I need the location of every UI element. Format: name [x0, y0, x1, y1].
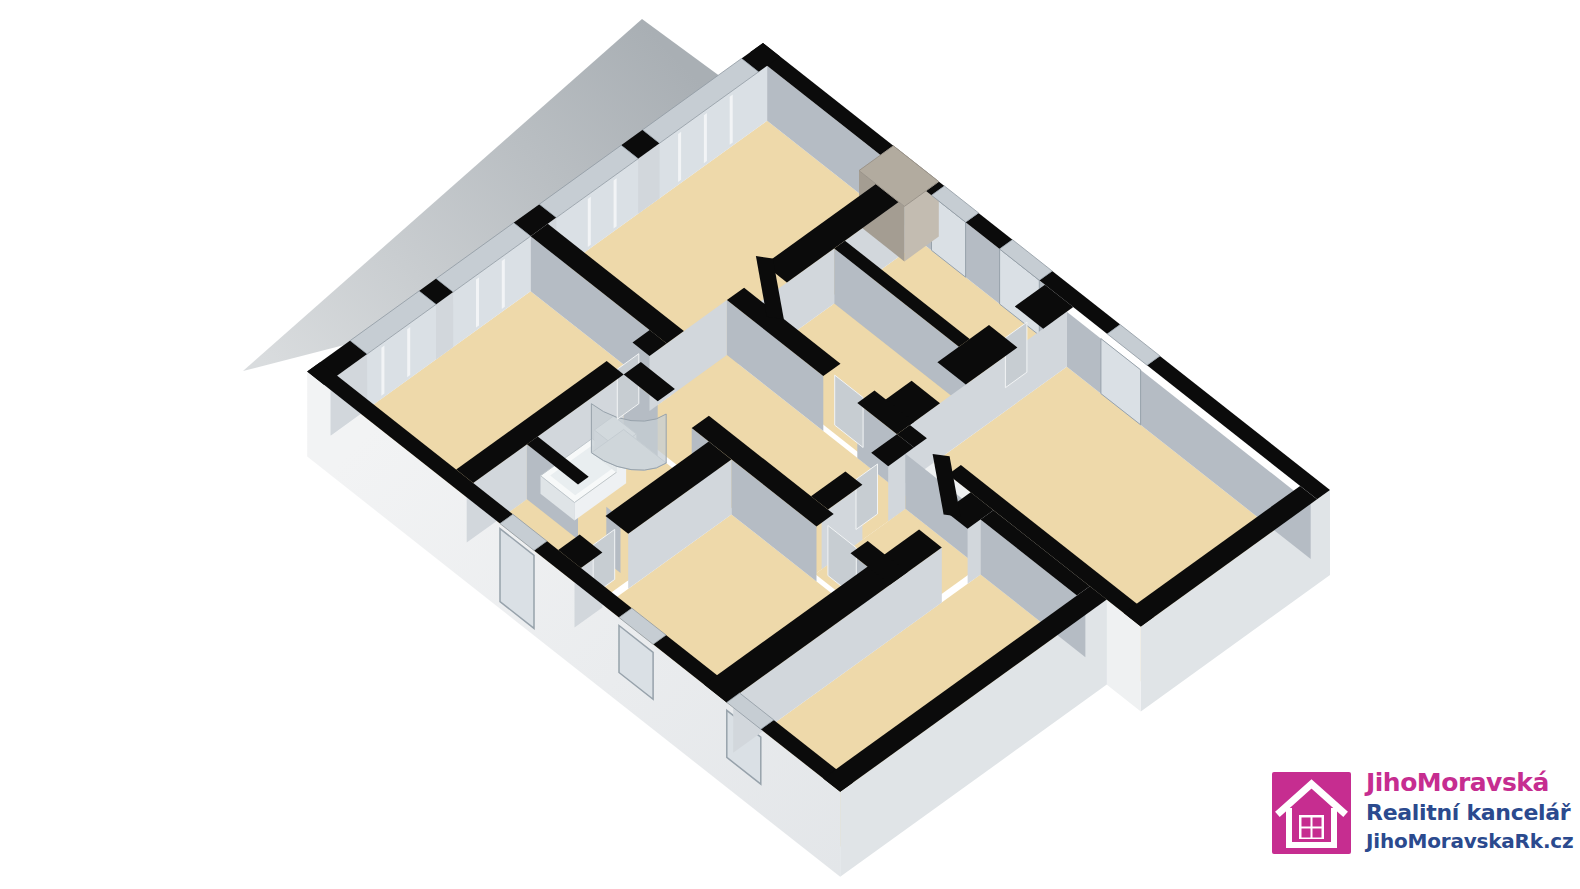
- glass-mullion: [614, 178, 617, 228]
- floorplan-3d-render: JihoMoravská Realitní kancelář JihoMorav…: [0, 0, 1580, 889]
- glass-mullion: [588, 197, 591, 247]
- glass-mullion: [476, 277, 479, 327]
- brand-subtitle: Realitní kancelář: [1366, 800, 1571, 825]
- house-icon: [1272, 772, 1351, 854]
- floorplan-screenshot: JihoMoravská Realitní kancelář JihoMorav…: [0, 0, 1580, 889]
- wall-face: [968, 520, 981, 584]
- glass-mullion: [407, 327, 410, 377]
- building-scene: [243, 19, 1330, 877]
- glass-mullion: [381, 346, 384, 396]
- brand-logo: JihoMoravská Realitní kancelář JihoMorav…: [1272, 768, 1573, 854]
- brand-name: JihoMoravská: [1364, 768, 1549, 797]
- glass-mullion: [502, 259, 505, 309]
- brand-website[interactable]: JihoMoravskaRk.cz: [1364, 829, 1573, 853]
- glass-mullion: [704, 113, 707, 163]
- glass-mullion: [730, 95, 733, 145]
- glass-mullion: [678, 132, 681, 182]
